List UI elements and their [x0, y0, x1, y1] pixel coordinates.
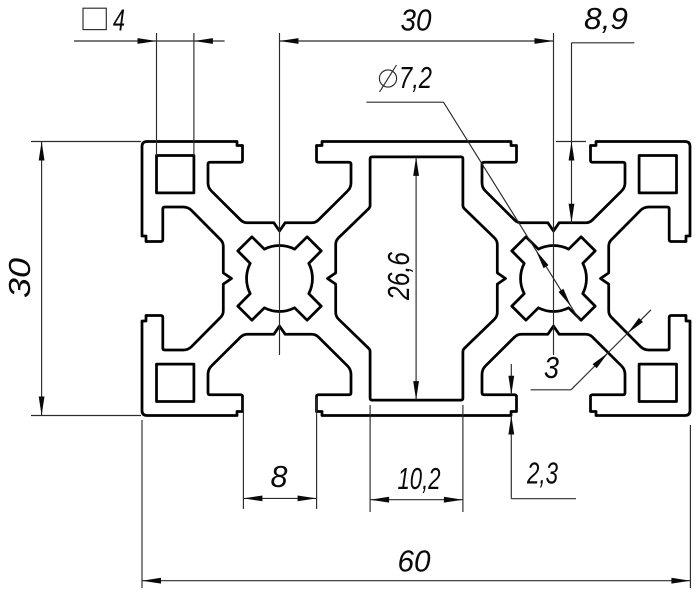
svg-text:26,6: 26,6	[381, 251, 416, 300]
svg-text:8,9: 8,9	[584, 1, 628, 36]
svg-text:7,2: 7,2	[399, 60, 432, 95]
svg-text:60: 60	[398, 544, 431, 579]
svg-text:30: 30	[2, 258, 37, 298]
svg-text:2,3: 2,3	[526, 456, 558, 491]
svg-text:4: 4	[113, 3, 125, 38]
svg-text:10,2: 10,2	[398, 461, 441, 496]
svg-text:8: 8	[271, 459, 289, 494]
svg-text:3: 3	[544, 350, 559, 385]
svg-text:30: 30	[401, 3, 432, 38]
